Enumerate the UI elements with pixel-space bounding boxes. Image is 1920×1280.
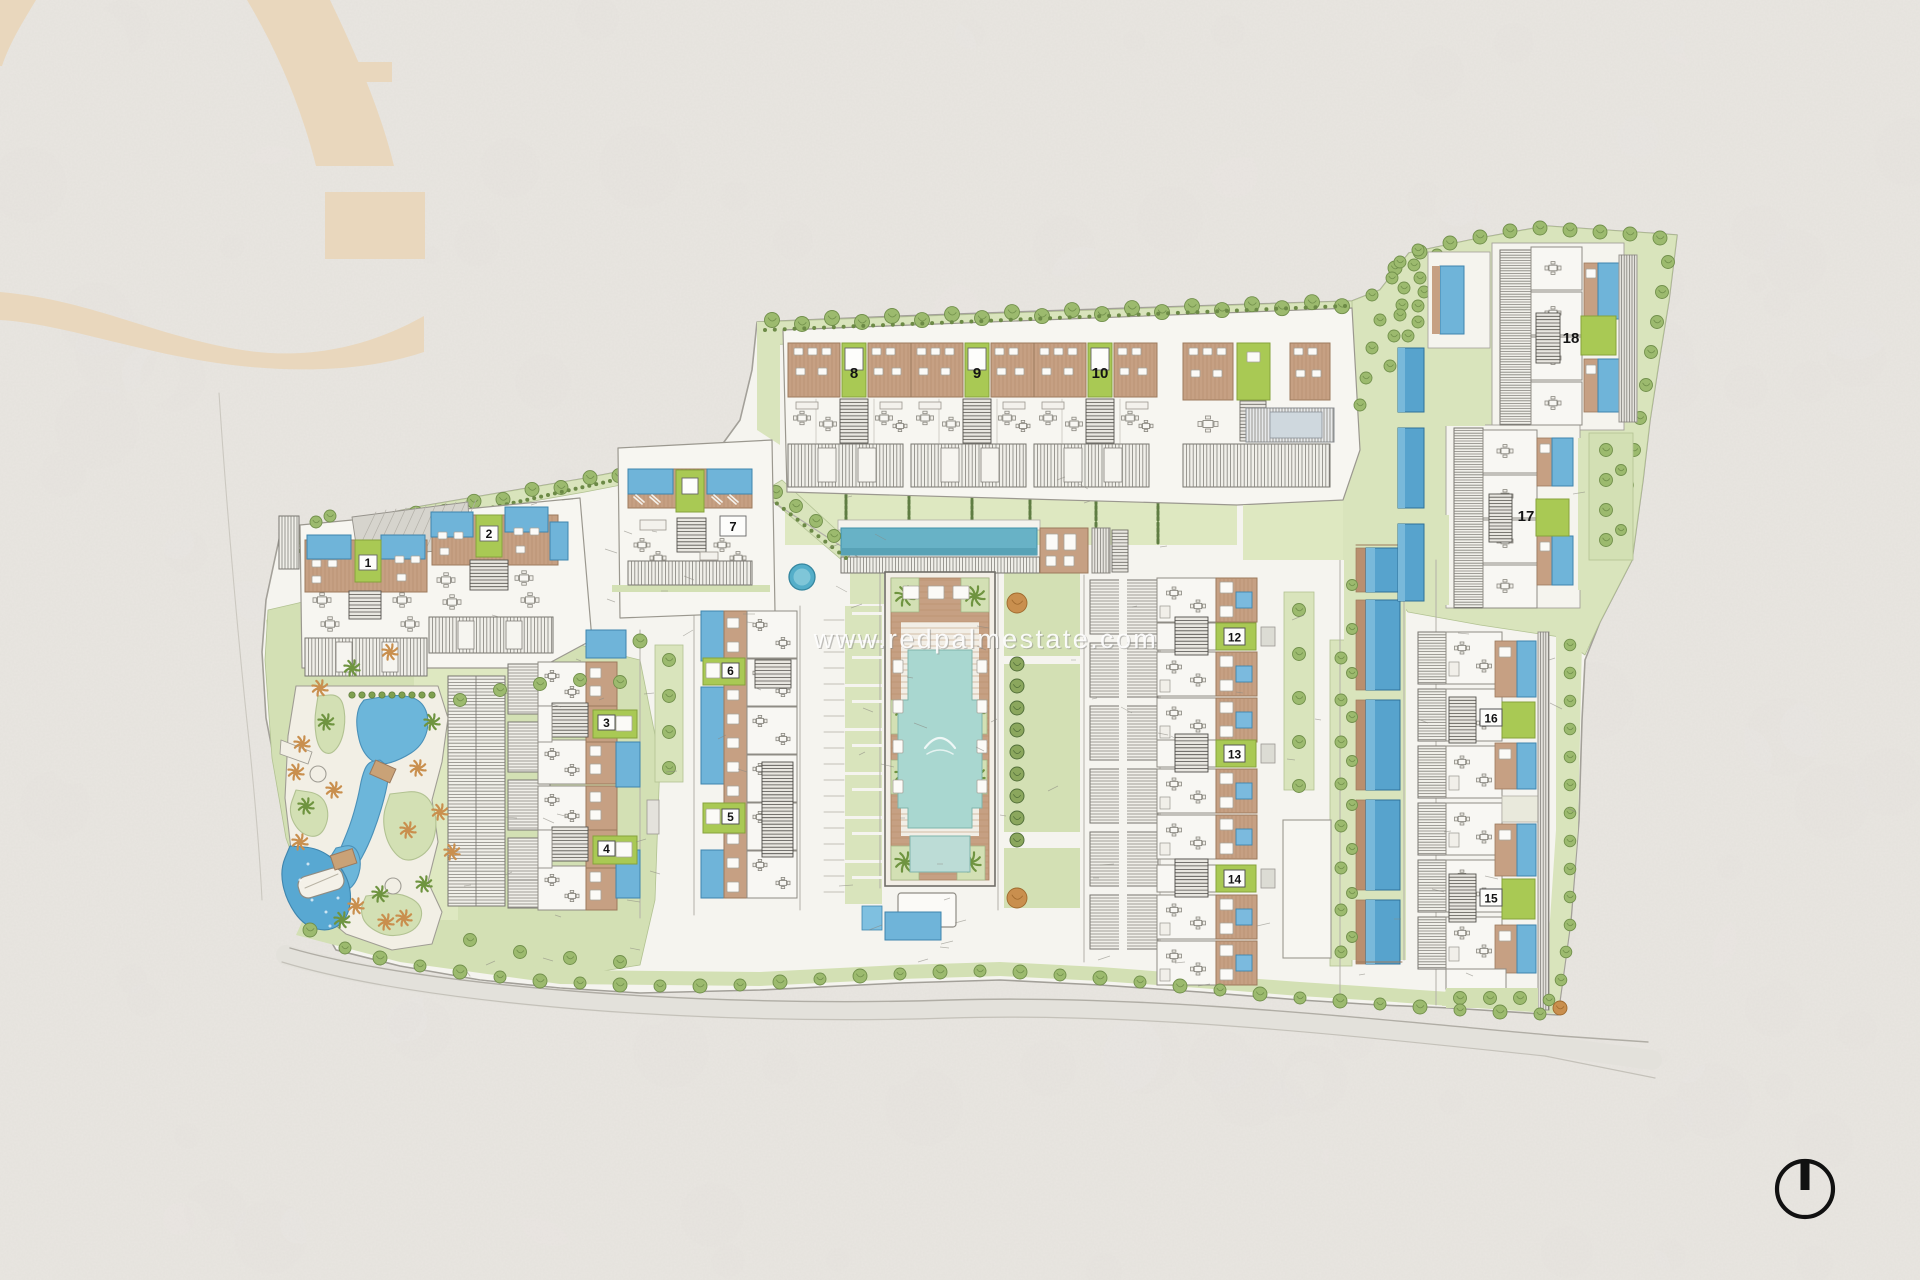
svg-text:2: 2 xyxy=(486,527,493,541)
svg-text:6: 6 xyxy=(727,664,734,678)
svg-text:15: 15 xyxy=(1484,892,1498,906)
svg-text:7: 7 xyxy=(729,519,736,534)
svg-text:16: 16 xyxy=(1484,712,1498,726)
svg-text:9: 9 xyxy=(973,365,981,382)
svg-text:1: 1 xyxy=(365,556,372,570)
svg-text:14: 14 xyxy=(1228,873,1242,887)
svg-text:12: 12 xyxy=(1228,631,1242,645)
svg-text:8: 8 xyxy=(850,365,858,382)
svg-text:4: 4 xyxy=(603,842,610,856)
svg-text:13: 13 xyxy=(1228,748,1242,762)
svg-text:18: 18 xyxy=(1563,330,1580,347)
svg-text:17: 17 xyxy=(1518,508,1535,525)
svg-text:10: 10 xyxy=(1092,365,1109,382)
svg-text:3: 3 xyxy=(603,716,610,730)
svg-text:5: 5 xyxy=(727,810,734,824)
